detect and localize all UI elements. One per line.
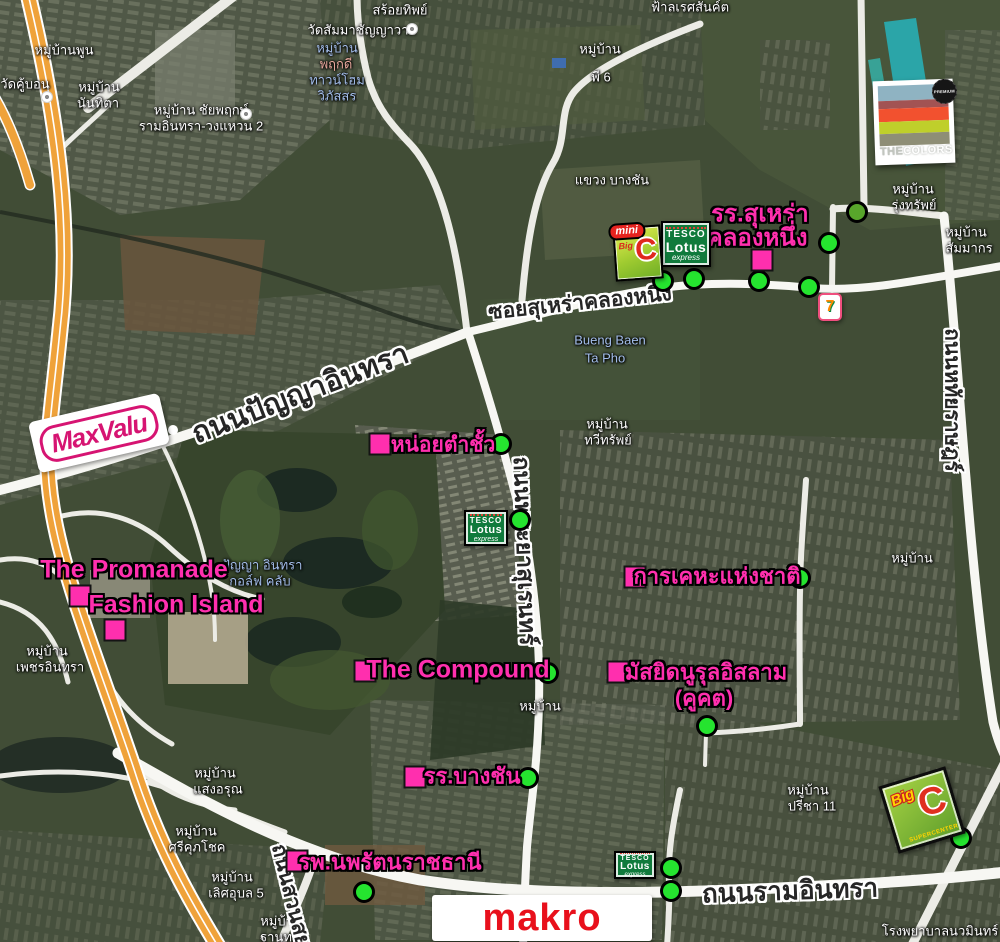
road-label-hathairat: ถนนหทัยราษฎร์ [936,328,969,472]
label-fashion-island: Fashion Island [88,591,263,620]
label-the-promanade: The Promanade [40,556,228,585]
lotus-text: Lotus [620,862,650,872]
seven-eleven-logo: 7 [818,293,842,321]
express-text: express [624,872,645,878]
bg-map-label: หมู่บ้านพูน [34,40,93,61]
pink-square-marker [104,619,127,642]
tesco-lotus-express-logo-bottom: TESCO Lotus express [614,851,656,879]
bg-map-label: แขวง บางชัน [575,170,649,191]
bg-map-label: หมู่บ้าน [519,696,561,717]
map-roads-svg [0,0,1000,942]
label-noi-tam-chua: หน่อยตำชั้ว [391,429,496,462]
mini-bigc-logo: mini Big C [612,224,664,281]
green-marker [660,880,682,902]
makro-logo-text: makro [482,899,601,937]
lotus-text: Lotus [470,525,502,536]
big-text: Big [618,240,633,251]
bg-map-label: แสงอรุณ [193,779,243,800]
bg-map-label: โรงพยาบาลนวมินทร์ [882,921,999,942]
pink-square-marker [369,433,392,456]
green-marker [353,881,375,903]
bg-map-label: เพชรอินทรา [16,657,84,678]
tesco-text: TESCO [470,514,503,525]
bg-map-label: ศรีคุภโชค [168,837,225,858]
bg-map-label: Bueng Baen [574,333,646,348]
bg-map-label: หมู่บ้าน [891,548,933,569]
express-text: express [474,536,499,543]
green-marker [696,715,718,737]
label-national-housing: การเคหะแห่งชาติ [633,559,800,594]
bg-map-label: เลิศอุบล 5 [208,883,264,904]
label-nurul-islam-mosque: (คูคต) [675,681,733,716]
seven-glyph: 7 [826,299,835,315]
lotus-text: Lotus [666,240,707,254]
temple-poi-icon [41,91,53,103]
bg-map-label: วิภัสสร [318,86,357,107]
green-marker [748,270,770,292]
the-colors-wordmark: THECOLORS [880,145,953,159]
the-colors-logo: THECOLORS PREMIUM [873,79,956,166]
bg-map-label: สร้อยทิพย์ [372,0,427,21]
bg-map-label: ทวีทรัพย์ [584,430,632,451]
temple-poi-icon [406,23,418,35]
road-label-phraya-suren: ถนนพระยาสุเรนทร์ [503,456,546,646]
bg-map-label: Ta Pho [585,351,625,366]
green-marker [660,857,682,879]
green-marker [509,509,531,531]
bg-map-label: ปรีชา 11 [788,796,836,817]
express-text: express [672,254,700,262]
road-label-ram-indra: ถนนรามอินทรา [701,867,878,914]
satellite-map: สร้อยทิพย์ วัดสัมมาชัญญาวาส วัดคู้บอน หม… [0,0,1000,942]
green-marker [818,232,840,254]
label-the-compound: The Compound [366,656,549,685]
c-letter: C [634,235,658,266]
bg-map-label: กอล์ฟ คลับ [229,571,290,592]
tesco-lotus-express-logo-middle: TESCO Lotus express [464,510,508,546]
makro-logo: makro [432,895,652,941]
tesco-lotus-express-logo-top: TESCO Lotus express [661,221,711,267]
label-bangchan-school: รร.บางชัน [424,759,521,794]
bg-map-label: รุ่งทรัพย์ [891,195,936,216]
tesco-text: TESCO [666,227,705,240]
big-text: Big [888,785,917,810]
bg-map-label: พี 6 [591,67,610,88]
green-marker [846,201,868,223]
green-marker [798,276,820,298]
bg-map-label: หมู่บ้าน [579,39,621,60]
c-letter: C [914,779,951,823]
pink-square-marker [751,249,774,272]
bg-map-label: ฟ้าลเรศสันค์ต [651,0,729,18]
village-poi-icon [240,108,252,120]
bg-map-label: สัมมากร [945,238,992,259]
label-nopparat-hospital: รพ.นพรัตนราชธานี [298,845,481,880]
green-marker [683,268,705,290]
bg-map-label: นันทิตา [77,93,119,114]
